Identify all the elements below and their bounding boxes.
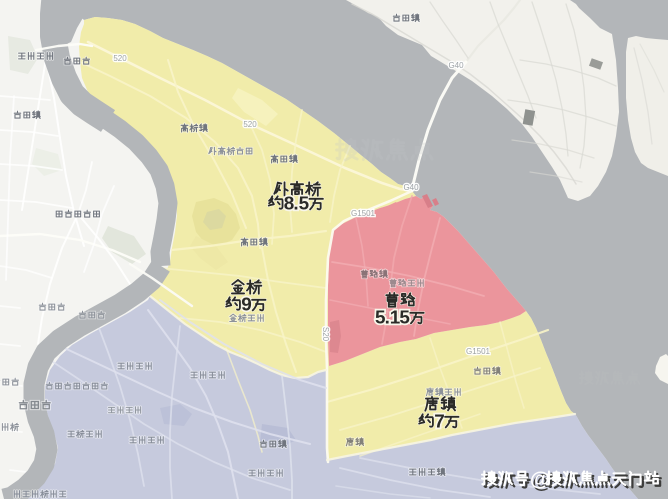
svg-text:7: 7	[434, 412, 445, 433]
svg-text:520: 520	[243, 120, 257, 129]
svg-text:9: 9	[241, 295, 252, 316]
svg-text:G40: G40	[403, 183, 419, 192]
svg-text:S20: S20	[321, 327, 330, 342]
svg-text:5: 5	[399, 308, 410, 329]
svg-text:5: 5	[299, 194, 310, 215]
svg-text:G1501: G1501	[466, 347, 491, 356]
svg-text:520: 520	[113, 54, 127, 63]
svg-text:G1501: G1501	[351, 209, 376, 218]
svg-text:G40: G40	[448, 61, 464, 70]
svg-text:@: @	[530, 469, 550, 491]
